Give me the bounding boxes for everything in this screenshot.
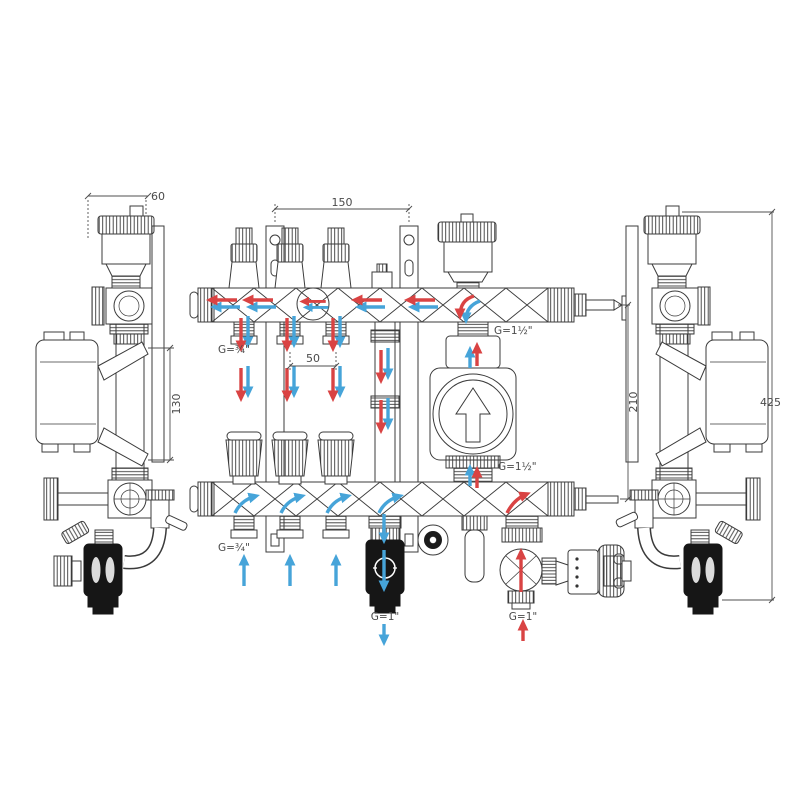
ball-valve-dark bbox=[84, 530, 122, 614]
left-side-view bbox=[36, 206, 188, 614]
knurled-knob bbox=[714, 520, 743, 544]
lever-handle bbox=[165, 515, 188, 532]
label-bottom-return: G=1" bbox=[371, 611, 399, 623]
dim-bracket-spacing: 150 bbox=[272, 196, 412, 222]
technical-drawing: G=¾" G=¾" G=1½" G=1½" G=1" G=1" bbox=[0, 0, 800, 800]
dial-thermometer bbox=[418, 525, 448, 555]
thermometer-probe bbox=[586, 300, 614, 310]
svg-text:60: 60 bbox=[151, 190, 165, 203]
drain-spout bbox=[586, 496, 618, 503]
air-vent bbox=[438, 214, 496, 288]
bar-plug bbox=[372, 272, 392, 288]
thermostatic-insert bbox=[318, 432, 354, 484]
label-pump-bottom: G=1½" bbox=[498, 461, 537, 473]
air-separator bbox=[98, 206, 154, 288]
label-return-outlets: G=¾" bbox=[218, 542, 250, 554]
svg-text:130: 130 bbox=[170, 394, 183, 415]
side-union bbox=[54, 556, 81, 586]
svg-text:50: 50 bbox=[306, 352, 320, 365]
supply-outlet bbox=[323, 322, 349, 344]
side-union bbox=[604, 556, 631, 586]
flow-meter bbox=[229, 228, 259, 288]
supply-manifold-bar bbox=[190, 288, 622, 322]
ball-valve-dark bbox=[684, 530, 722, 614]
wall-bracket-profile bbox=[152, 226, 164, 462]
supply-outlet bbox=[277, 322, 303, 344]
return-outlet bbox=[323, 516, 349, 538]
drawing-page: G=¾" G=¾" G=1½" G=1½" G=1" G=1" bbox=[0, 0, 800, 800]
label-supply-outlets: G=¾" bbox=[218, 344, 250, 356]
balancing-valve bbox=[652, 468, 760, 520]
return-outlet bbox=[277, 516, 303, 538]
pump-group bbox=[430, 322, 516, 482]
thermostatic-insert bbox=[272, 432, 308, 484]
return-manifold-bar bbox=[190, 482, 618, 516]
shutoff-valve bbox=[652, 287, 710, 344]
label-pump-top: G=1½" bbox=[494, 325, 533, 337]
flow-meter bbox=[321, 228, 351, 288]
return-outlet bbox=[231, 516, 257, 538]
label-bottom-supply: G=1" bbox=[509, 611, 537, 623]
svg-text:150: 150 bbox=[332, 196, 353, 209]
drain-tube bbox=[462, 516, 487, 582]
front-view: G=¾" G=¾" G=1½" G=1½" G=1" G=1" bbox=[190, 214, 624, 642]
bar-plug bbox=[377, 264, 387, 272]
svg-text:210: 210 bbox=[627, 392, 640, 413]
shutoff-valve bbox=[92, 287, 152, 344]
mid-riser-pipe bbox=[371, 322, 399, 482]
air-separator bbox=[644, 206, 700, 288]
thermostatic-insert bbox=[226, 432, 262, 484]
supply-outlet bbox=[231, 322, 257, 344]
svg-text:425: 425 bbox=[760, 396, 781, 409]
balancing-valve bbox=[44, 468, 152, 520]
knurled-knob bbox=[61, 520, 90, 544]
